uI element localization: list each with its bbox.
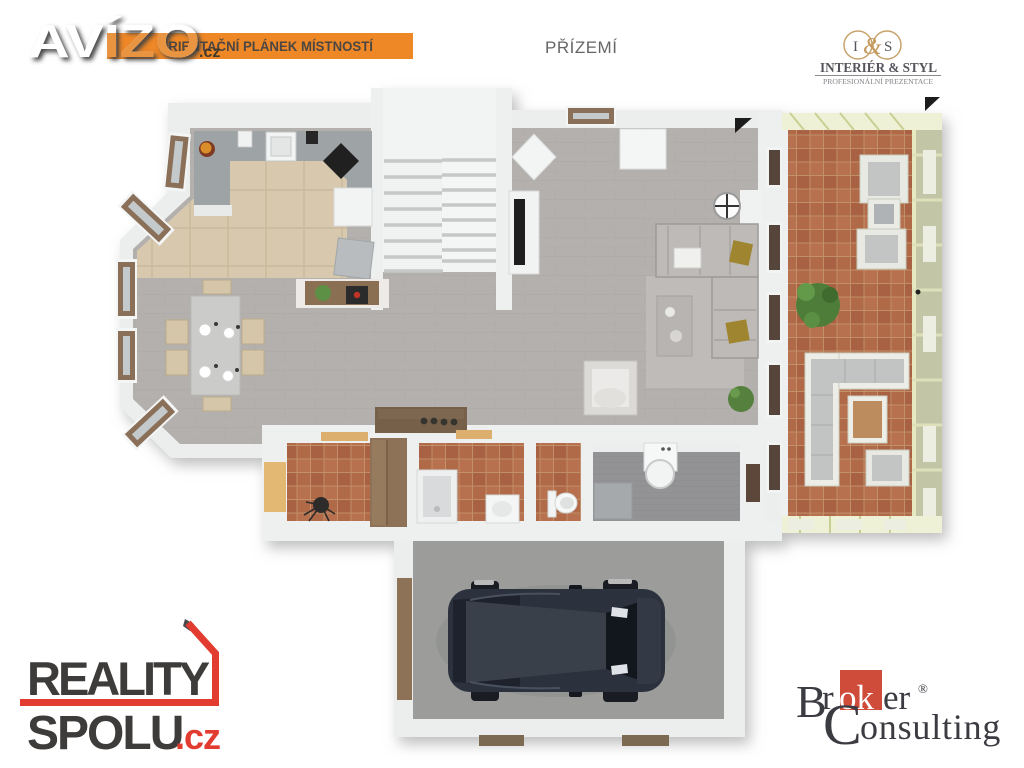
svg-text:PŘÍZEMÍ: PŘÍZEMÍ (545, 38, 617, 57)
svg-text:.cz: .cz (199, 44, 220, 61)
svg-text:SPOLU: SPOLU (27, 707, 182, 760)
svg-text:S: S (884, 39, 892, 55)
svg-text:.cz: .cz (175, 716, 220, 757)
svg-text:I: I (853, 39, 858, 55)
svg-text:C: C (823, 692, 862, 757)
svg-text:onsulting: onsulting (860, 707, 1001, 747)
svg-text:&: & (863, 34, 882, 60)
svg-text:REALITY: REALITY (27, 652, 210, 705)
svg-text:PROFESIONÁLNÍ PREZENTACE: PROFESIONÁLNÍ PREZENTACE (823, 76, 933, 86)
svg-text:INTERIÉR & STYL: INTERIÉR & STYL (820, 59, 937, 76)
svg-text:®: ® (918, 681, 928, 696)
